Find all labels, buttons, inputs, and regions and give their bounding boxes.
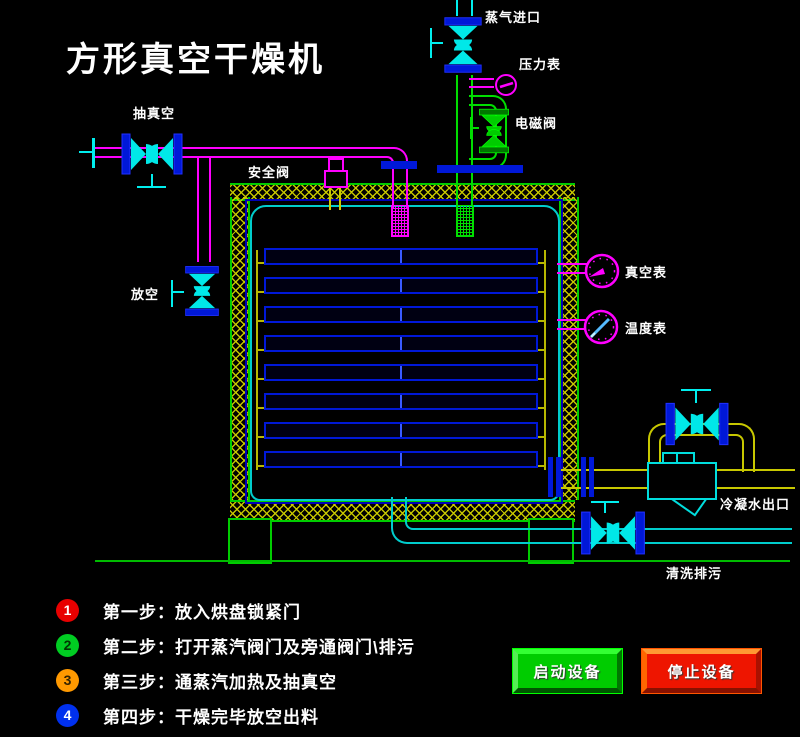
valve-stem	[431, 42, 443, 44]
solenoid-valve-icon	[478, 106, 510, 156]
flange	[548, 457, 553, 497]
step-badge: 3	[56, 669, 79, 692]
tray-divider	[400, 424, 402, 437]
gauge-stub-pipe	[469, 78, 494, 88]
heating-manifold-right	[544, 250, 546, 470]
step-item: 3 第三步：通蒸汽加热及抽真空	[56, 667, 337, 693]
drying-tray	[264, 335, 538, 352]
step-badge: 4	[56, 704, 79, 727]
drying-tray	[264, 248, 538, 265]
label-flush-drain: 清洗排污	[666, 563, 722, 582]
drying-tray	[264, 364, 538, 381]
temperature-gauge-icon	[583, 309, 619, 345]
pressure-gauge-icon	[494, 73, 518, 97]
trap-bypass-valve-icon	[664, 401, 730, 447]
flange	[581, 457, 586, 497]
drying-tray	[264, 422, 538, 439]
flush-drain-valve-icon	[579, 510, 647, 556]
label-temperature-gauge: 温度表	[625, 318, 667, 337]
tray-divider	[400, 366, 402, 379]
flange	[437, 165, 523, 173]
drying-tray	[264, 306, 538, 323]
step-item: 4 第四步：干燥完毕放空出料	[56, 702, 319, 728]
gauge-stub-pipe	[557, 263, 587, 274]
valve-stem	[695, 391, 697, 403]
valve-stem	[604, 503, 606, 513]
valve-stem	[471, 127, 479, 129]
label-pressure-gauge: 压力表	[519, 54, 561, 73]
vent-pipe	[197, 157, 211, 262]
step-label: 第三步：通蒸汽加热及抽真空	[103, 668, 337, 693]
step-label: 第四步：干燥完毕放空出料	[103, 703, 319, 728]
label-vacuum-suction: 抽真空	[133, 103, 175, 122]
vent-valve-icon	[184, 260, 220, 322]
vacuum-suction-port	[391, 205, 409, 237]
tray-divider	[400, 308, 402, 321]
label-safety-valve: 安全阀	[248, 162, 290, 181]
flange	[589, 457, 594, 497]
drying-tray	[264, 277, 538, 294]
step-item: 1 第一步：放入烘盘锁紧门	[56, 597, 301, 623]
label-steam-inlet: 蒸气进口	[485, 7, 541, 26]
hmi-screen: 方形真空干燥机 蒸气进口 压力表 电磁阀 抽真空 安全阀 放空 真空表 温度表 …	[0, 0, 800, 737]
step-badge: 2	[56, 634, 79, 657]
step-badge: 1	[56, 599, 79, 622]
drying-tray	[264, 393, 538, 410]
start-device-button[interactable]: 启动设备	[513, 649, 622, 693]
label-vent: 放空	[131, 284, 159, 303]
tray-divider	[400, 279, 402, 292]
vacuum-gauge-icon	[584, 253, 620, 289]
tray-divider	[400, 395, 402, 408]
page-title: 方形真空干燥机	[66, 32, 325, 81]
steam-inlet-valve-icon	[443, 13, 483, 77]
step-item: 2 第二步：打开蒸汽阀门及旁通阀门\排污	[56, 632, 415, 658]
steam-trap-body	[647, 462, 717, 500]
valve-stem	[172, 291, 184, 293]
label-vacuum-gauge: 真空表	[625, 262, 667, 281]
label-solenoid-valve: 电磁阀	[515, 113, 557, 132]
tray-divider	[400, 250, 402, 263]
pipe-end-cap	[79, 151, 92, 153]
label-condensate-outlet: 冷凝水出口	[720, 494, 790, 513]
valve-stem	[137, 186, 166, 188]
pipe-end-cap	[92, 138, 95, 168]
step-label: 第二步：打开蒸汽阀门及旁通阀门\排污	[103, 633, 415, 658]
drying-tray	[264, 451, 538, 468]
flange	[381, 161, 417, 169]
valve-stem	[171, 280, 173, 307]
tray-divider	[400, 337, 402, 350]
tray-divider	[400, 453, 402, 466]
flange	[556, 457, 561, 497]
vacuum-valve-icon	[120, 132, 184, 176]
safety-valve-icon	[324, 170, 348, 188]
tank-leg-left	[228, 518, 272, 564]
steam-diffuser	[456, 205, 474, 237]
step-label: 第一步：放入烘盘锁紧门	[103, 598, 301, 623]
ground-line	[95, 560, 790, 562]
stop-device-button[interactable]: 停止设备	[642, 649, 761, 693]
